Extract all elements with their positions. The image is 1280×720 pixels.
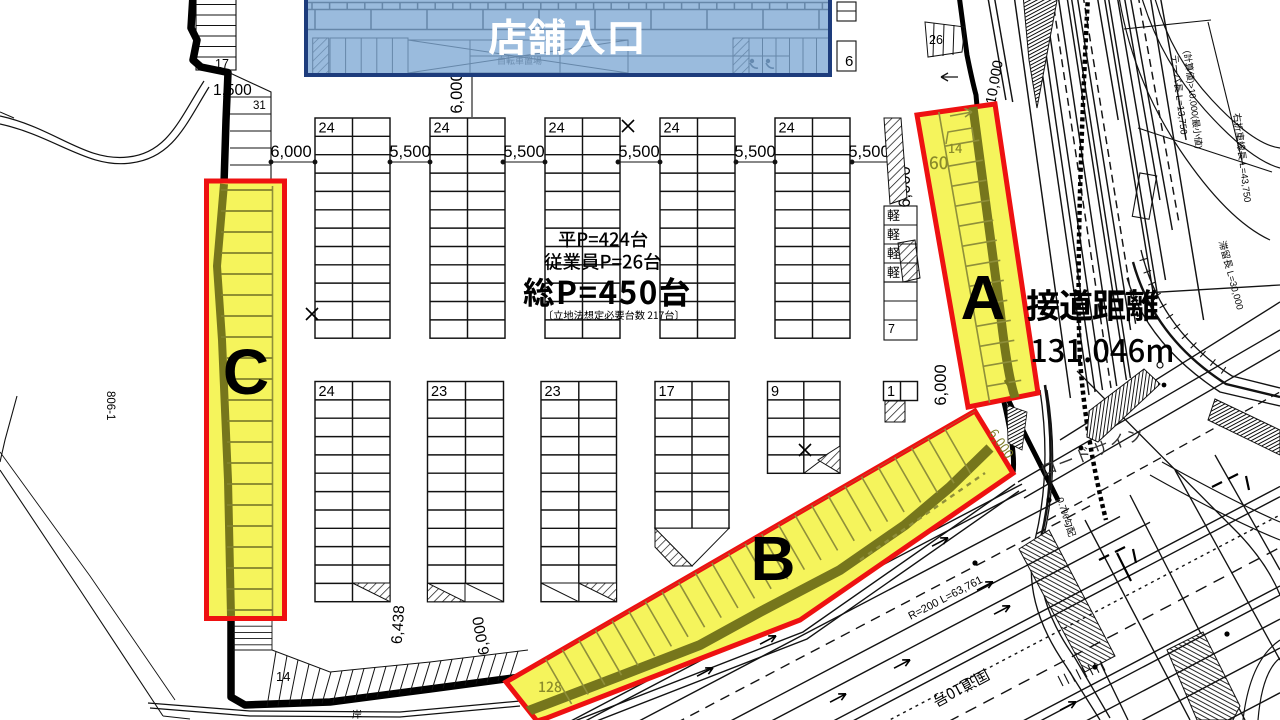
svg-text:6,000: 6,000 [448, 72, 466, 113]
svg-text:24: 24 [664, 121, 680, 137]
svg-text:5,500: 5,500 [503, 143, 544, 161]
svg-text:26: 26 [929, 33, 943, 47]
svg-text:17: 17 [659, 384, 675, 400]
svg-text:14: 14 [276, 669, 290, 684]
svg-text:23: 23 [431, 384, 447, 400]
svg-text:A: A [961, 264, 1006, 333]
svg-text:6,000: 6,000 [270, 143, 311, 161]
svg-text:806-1: 806-1 [104, 391, 116, 420]
svg-text:24: 24 [319, 121, 335, 137]
svg-text:23: 23 [545, 384, 561, 400]
svg-text:7: 7 [888, 322, 895, 336]
svg-text:9: 9 [771, 384, 779, 400]
svg-text:24: 24 [549, 121, 565, 137]
svg-text:31: 31 [253, 100, 266, 112]
svg-text:5,500: 5,500 [848, 143, 889, 161]
svg-text:6,438: 6,438 [389, 605, 409, 645]
svg-text:5,500: 5,500 [734, 143, 775, 161]
svg-text:C: C [223, 336, 269, 408]
svg-text:6,000: 6,000 [932, 364, 950, 405]
svg-text:5,500: 5,500 [389, 143, 430, 161]
svg-text:24: 24 [319, 384, 335, 400]
svg-text:5,500: 5,500 [618, 143, 659, 161]
svg-text:6: 6 [845, 53, 853, 70]
svg-text:24: 24 [434, 121, 450, 137]
svg-text:B: B [751, 525, 796, 594]
svg-text:24: 24 [779, 121, 795, 137]
svg-text:1,500: 1,500 [213, 82, 252, 99]
svg-text:1: 1 [887, 384, 895, 400]
